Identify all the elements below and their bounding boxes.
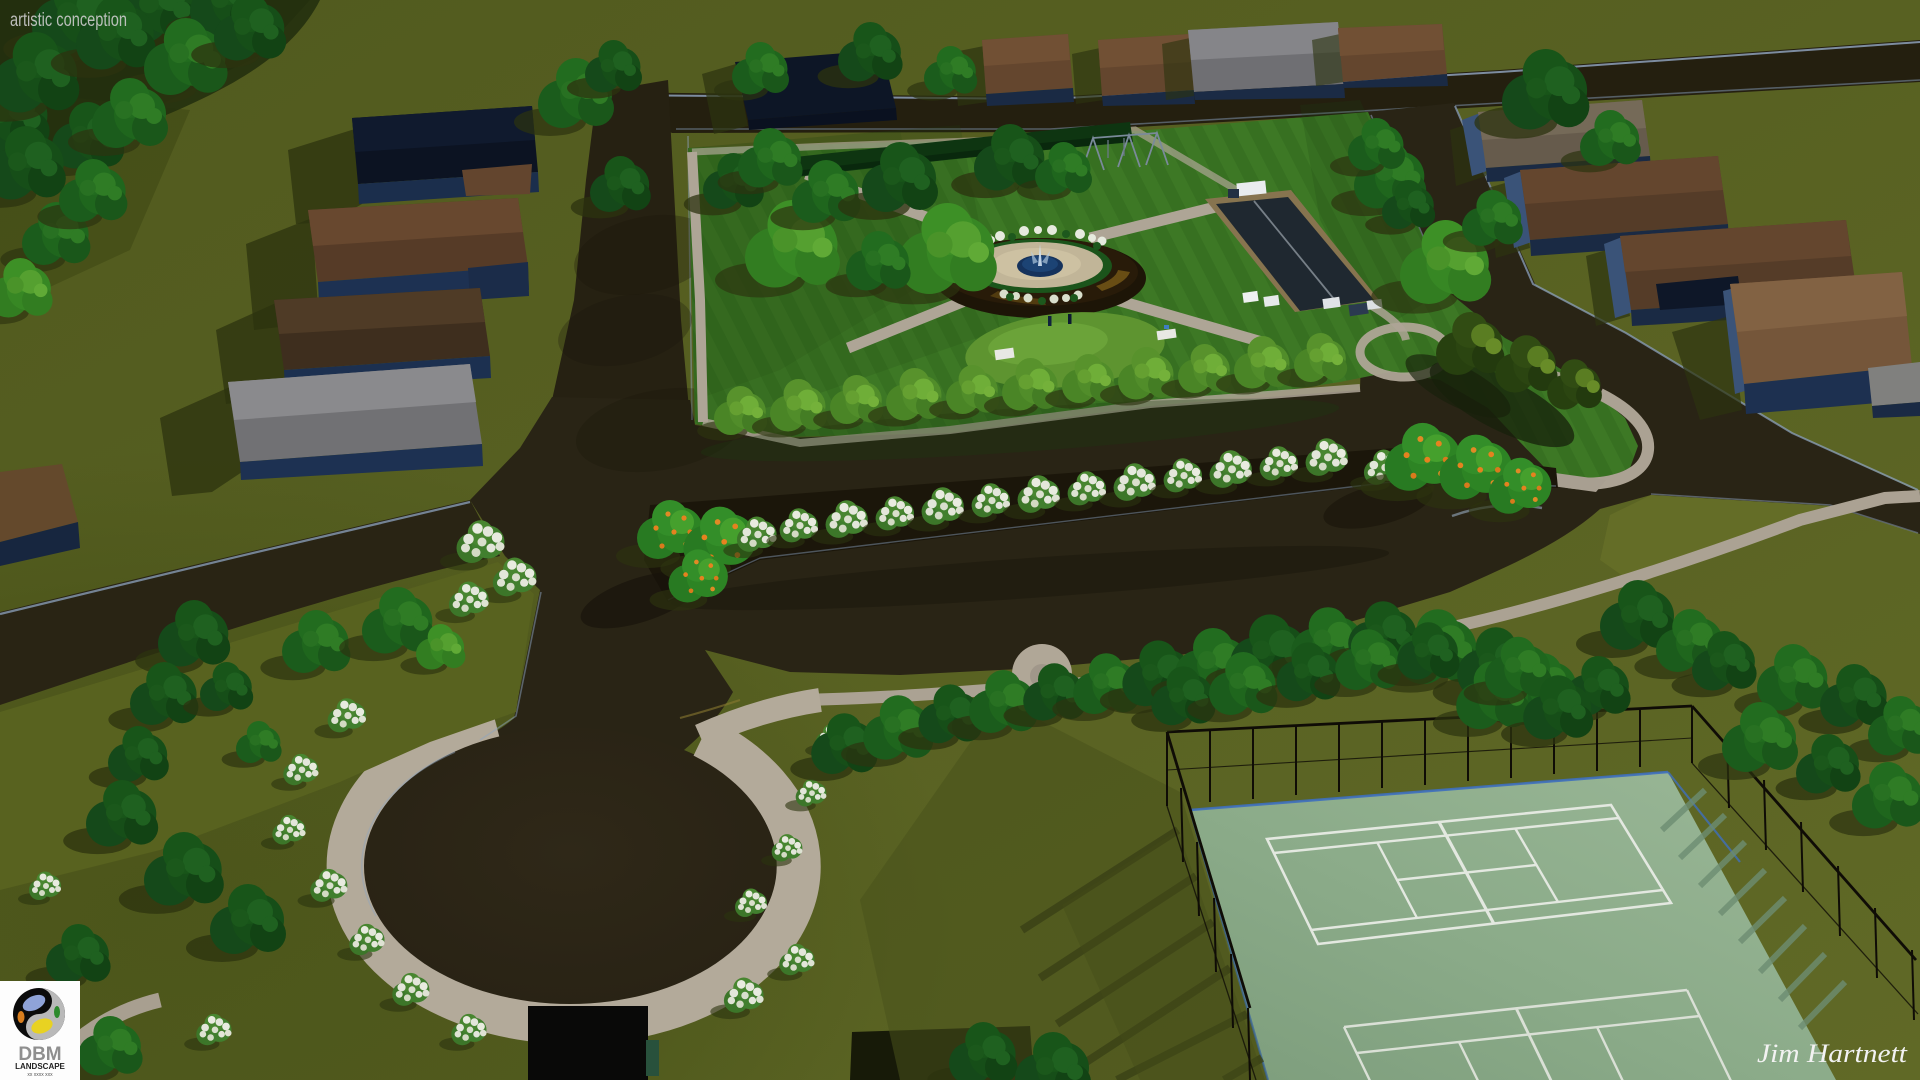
svg-text:artistic conception: artistic conception bbox=[10, 9, 127, 31]
svg-text:Jim Hartnett: Jim Hartnett bbox=[1757, 1039, 1908, 1068]
svg-text:xx xxxx xxx: xx xxxx xxx bbox=[27, 1072, 53, 1078]
svg-text:LANDSCAPE: LANDSCAPE bbox=[15, 1062, 65, 1071]
